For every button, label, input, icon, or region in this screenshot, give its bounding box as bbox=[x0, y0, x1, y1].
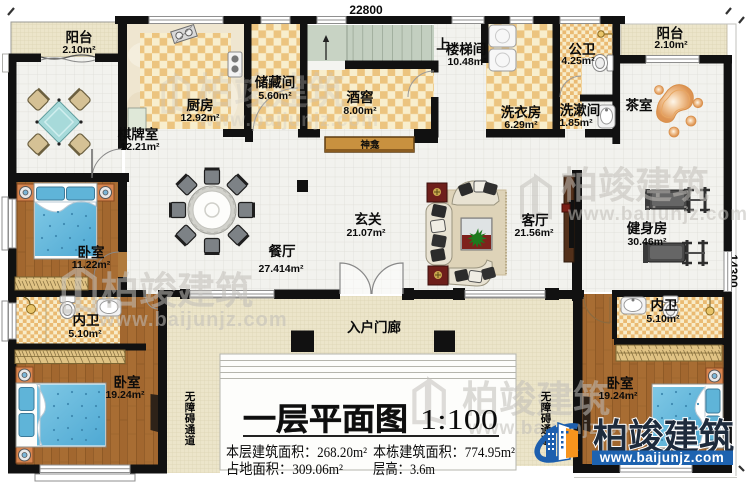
svg-text:柏竣建筑: 柏竣建筑 bbox=[101, 271, 253, 313]
svg-text:21.56m²: 21.56m² bbox=[514, 227, 554, 239]
svg-text:柏竣建筑: 柏竣建筑 bbox=[561, 164, 709, 206]
svg-text:8.00m²: 8.00m² bbox=[343, 105, 377, 117]
svg-text:楼梯间: 楼梯间 bbox=[446, 41, 487, 57]
svg-text:酒窖: 酒窖 bbox=[347, 89, 374, 105]
svg-text:一层平面图: 一层平面图 bbox=[243, 402, 408, 437]
svg-text:入户门廊: 入户门廊 bbox=[347, 319, 401, 335]
svg-text:厨房: 厨房 bbox=[187, 97, 214, 113]
svg-text:12.21m²: 12.21m² bbox=[120, 141, 160, 153]
svg-text:www.baijunjz.com: www.baijunjz.com bbox=[599, 450, 725, 465]
svg-text:30.46m²: 30.46m² bbox=[627, 236, 667, 248]
svg-text:神龛: 神龛 bbox=[360, 139, 380, 151]
svg-text:19.24m²: 19.24m² bbox=[598, 390, 638, 402]
svg-text:12.92m²: 12.92m² bbox=[180, 112, 220, 124]
svg-text:玄关: 玄关 bbox=[355, 211, 382, 227]
svg-text:2.10m²: 2.10m² bbox=[654, 39, 688, 51]
svg-text:5.10m²: 5.10m² bbox=[68, 328, 102, 340]
svg-text:健身房: 健身房 bbox=[627, 220, 668, 236]
svg-text:2.10m²: 2.10m² bbox=[62, 44, 96, 56]
svg-text:22800: 22800 bbox=[349, 3, 383, 17]
svg-text:内卫: 内卫 bbox=[73, 312, 100, 328]
svg-text:1.85m²: 1.85m² bbox=[559, 117, 593, 129]
svg-text:5.10m²: 5.10m² bbox=[646, 313, 680, 325]
svg-text:6.29m²: 6.29m² bbox=[504, 119, 538, 131]
svg-text:阳台: 阳台 bbox=[66, 29, 93, 45]
svg-text:客厅: 客厅 bbox=[521, 212, 550, 228]
svg-text:卧室: 卧室 bbox=[78, 244, 105, 260]
svg-text:27.414m²: 27.414m² bbox=[259, 263, 304, 275]
svg-text:5.60m²: 5.60m² bbox=[258, 90, 292, 102]
svg-text:11.22m²: 11.22m² bbox=[72, 259, 111, 271]
svg-text:层高：3.6m: 层高：3.6m bbox=[373, 461, 436, 478]
svg-text:内卫: 内卫 bbox=[651, 297, 679, 313]
svg-text:卧室: 卧室 bbox=[607, 375, 635, 391]
svg-text:卧室: 卧室 bbox=[114, 374, 141, 390]
svg-text:棋牌室: 棋牌室 bbox=[118, 126, 159, 142]
svg-text:本层建筑面积：268.20m²: 本层建筑面积：268.20m² bbox=[226, 444, 368, 461]
svg-text:储藏间: 储藏间 bbox=[254, 74, 296, 90]
svg-text:本栋建筑面积：774.95m²: 本栋建筑面积：774.95m² bbox=[373, 443, 516, 461]
svg-text:餐厅: 餐厅 bbox=[268, 243, 296, 259]
svg-text:茶室: 茶室 bbox=[625, 97, 654, 113]
svg-text:1:100: 1:100 bbox=[420, 404, 498, 436]
svg-text:洗衣房: 洗衣房 bbox=[501, 104, 542, 120]
svg-text:10.48m²: 10.48m² bbox=[447, 56, 487, 68]
svg-text:道: 道 bbox=[185, 434, 196, 447]
svg-text:21.07m²: 21.07m² bbox=[346, 227, 386, 239]
svg-text:www.baijunjz.com: www.baijunjz.com bbox=[98, 309, 288, 331]
svg-text:19.24m²: 19.24m² bbox=[105, 389, 145, 401]
svg-text:4.25m²: 4.25m² bbox=[561, 55, 595, 67]
svg-text:洗漱间: 洗漱间 bbox=[560, 102, 601, 118]
svg-text:占地面积：309.06m²: 占地面积：309.06m² bbox=[226, 461, 344, 478]
